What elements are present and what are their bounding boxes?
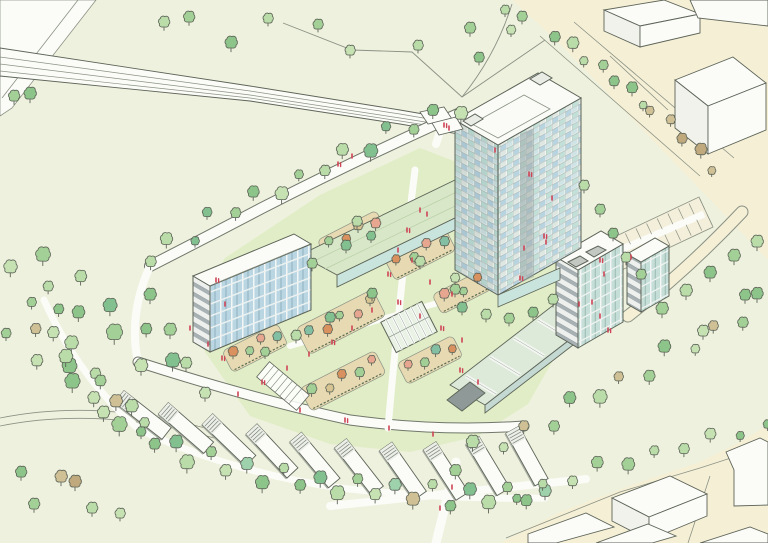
east-annex-end-facade — [627, 254, 641, 312]
west-block-end-facade — [193, 276, 210, 352]
masterplan-sketch — [0, 0, 768, 543]
tower-core-strip — [520, 128, 534, 283]
masterplan-illustration — [0, 0, 768, 543]
tower-west-facade — [455, 120, 498, 295]
